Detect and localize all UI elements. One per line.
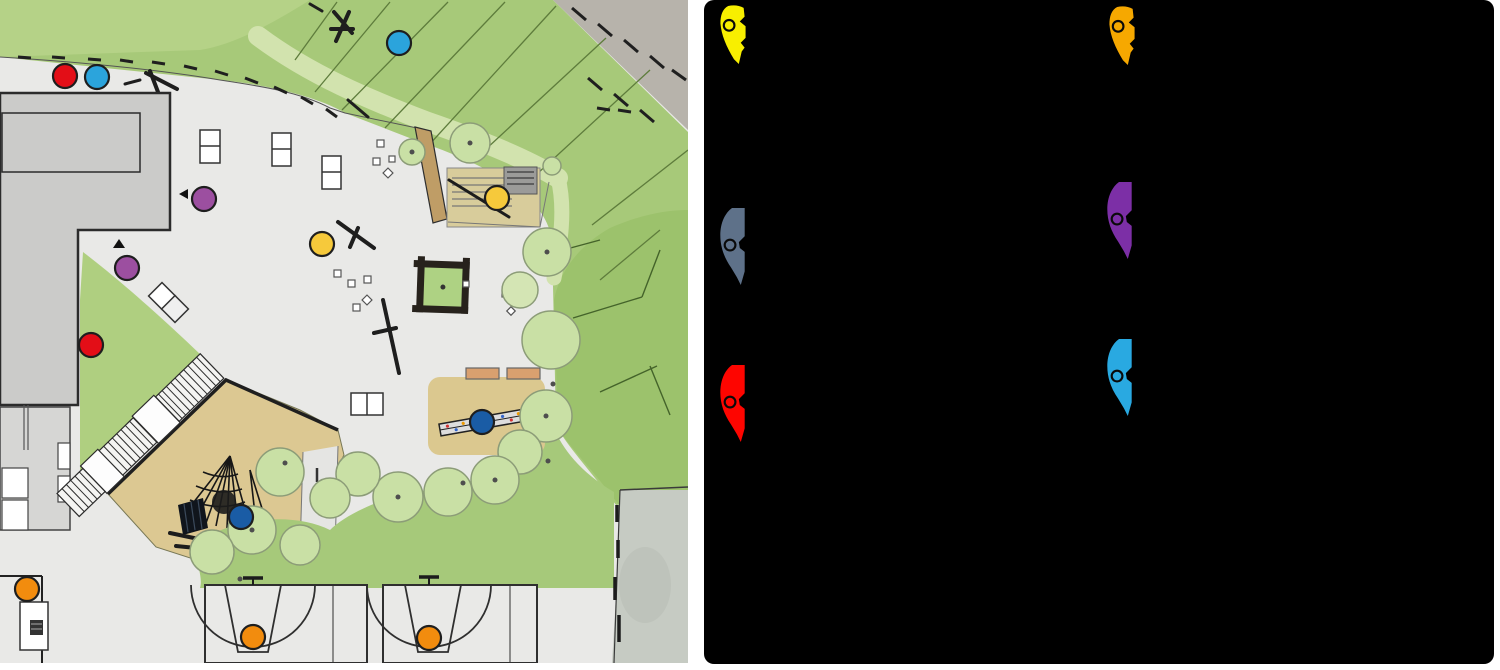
slate-pin-icon[interactable] bbox=[719, 207, 746, 286]
map-marker-yellow[interactable] bbox=[310, 232, 334, 256]
map-marker-orange[interactable] bbox=[417, 626, 441, 650]
screenshot-stage bbox=[0, 0, 1500, 670]
sky-pin-icon[interactable] bbox=[1106, 338, 1133, 417]
map-marker-orange[interactable] bbox=[241, 625, 265, 649]
map-marker-navy[interactable] bbox=[470, 410, 494, 434]
side-path bbox=[612, 487, 688, 663]
site-plan-map[interactable] bbox=[0, 0, 688, 663]
amber-pin-icon[interactable] bbox=[1108, 6, 1136, 66]
site-plan-terrain bbox=[0, 0, 688, 663]
map-marker-purple[interactable] bbox=[115, 256, 139, 280]
map-marker-red[interactable] bbox=[79, 333, 103, 357]
map-marker-lightblue[interactable] bbox=[387, 31, 411, 55]
red-pin-icon[interactable] bbox=[719, 364, 746, 443]
map-marker-navy[interactable] bbox=[229, 505, 253, 529]
map-marker-yellow[interactable] bbox=[485, 186, 509, 210]
map-marker-red[interactable] bbox=[53, 64, 77, 88]
yellow-pin-icon[interactable] bbox=[719, 5, 747, 65]
log-planter bbox=[412, 256, 470, 314]
purple-pin-icon[interactable] bbox=[1106, 181, 1133, 260]
map-marker-orange[interactable] bbox=[15, 577, 39, 601]
legend-panel bbox=[704, 0, 1494, 664]
map-marker-lightblue[interactable] bbox=[85, 65, 109, 89]
map-marker-purple[interactable] bbox=[192, 187, 216, 211]
